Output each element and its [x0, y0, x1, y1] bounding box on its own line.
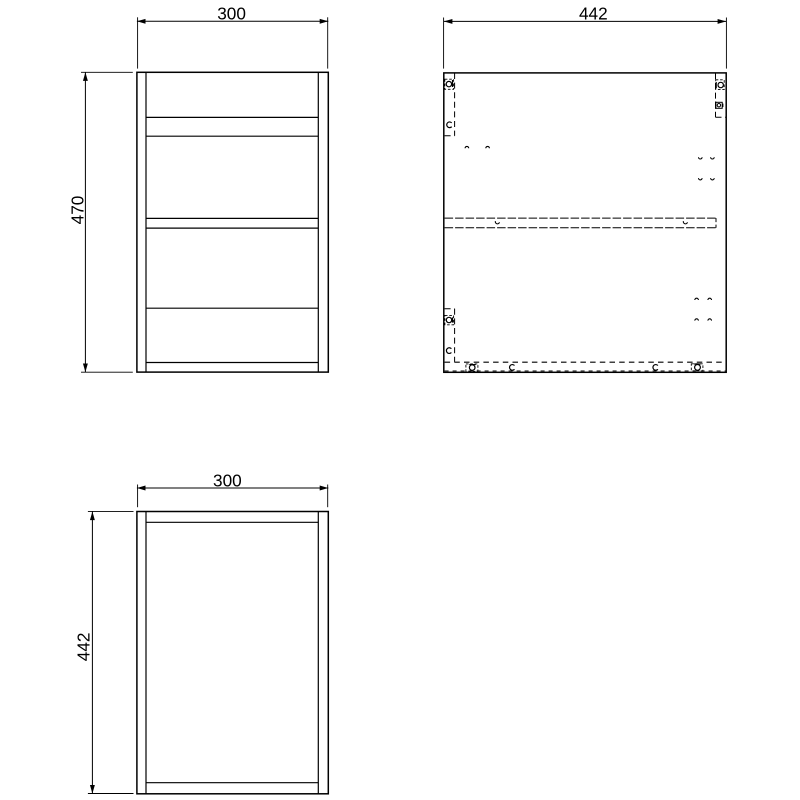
svg-text:442: 442: [73, 633, 93, 662]
svg-text:470: 470: [67, 196, 87, 225]
svg-text:300: 300: [217, 4, 246, 24]
svg-text:442: 442: [579, 4, 608, 24]
svg-text:300: 300: [213, 470, 242, 490]
